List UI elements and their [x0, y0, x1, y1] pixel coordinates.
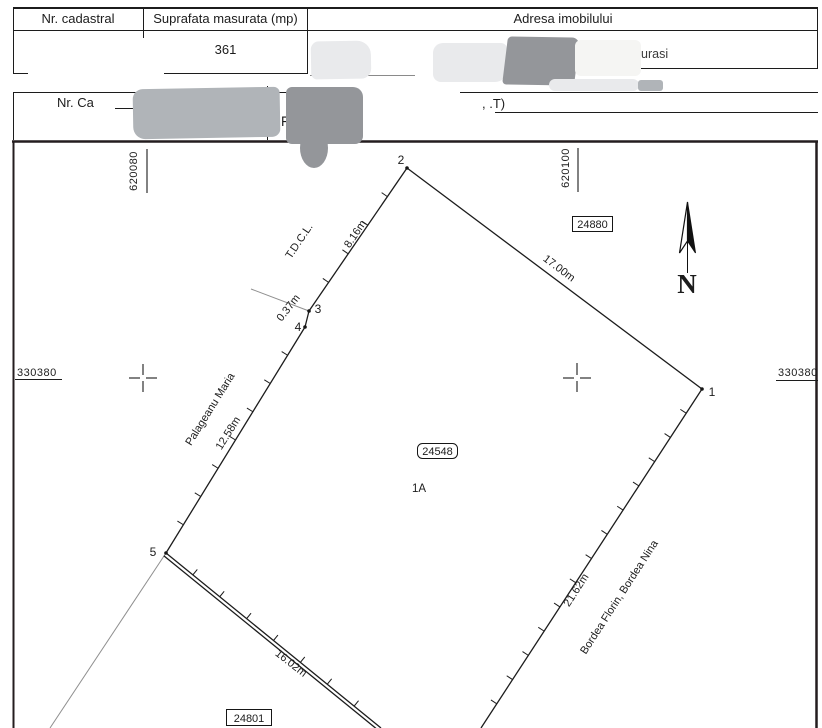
table1-top-border [13, 7, 818, 9]
point-label-1: 1 [709, 385, 716, 399]
neighbor-parcel-south-box: 24801 [227, 710, 272, 726]
abutter-north-label: T.D.C.L. [283, 221, 315, 261]
point-label-3: 3 [315, 302, 322, 316]
redaction-blob-white [28, 66, 164, 81]
table2-uat-fragment: , .T) [482, 96, 505, 111]
north-arrow-icon: N [677, 202, 697, 299]
table1-value-suprafata: 361 [144, 42, 307, 57]
neighbor-parcel-north-box: 24880 [573, 217, 613, 232]
redaction-blob [549, 79, 639, 91]
grid-cross-west [129, 364, 157, 392]
redaction-blob [575, 40, 641, 76]
measure-1-south: 21.62m [561, 572, 591, 609]
northing-label-right: 330380 [778, 367, 818, 379]
table2-row-divider-right [495, 112, 818, 113]
table1-header-adresa: Adresa imobilului [308, 11, 818, 26]
redaction-blob [311, 40, 372, 79]
subject-parcel-box: 24548 [418, 444, 458, 459]
easting-label-right: 620100 [560, 148, 572, 188]
table2-top-border-right [460, 92, 818, 93]
boundary-3-4 [305, 311, 309, 327]
measure-5-south: 16.02m [273, 648, 309, 680]
northing-label-left: 330380 [17, 367, 57, 379]
boundary-2-1 [407, 168, 702, 389]
redaction-blob [133, 87, 281, 140]
point-label-5: 5 [150, 545, 157, 559]
boundary-vertices [164, 166, 704, 555]
lot-label: 1A [412, 483, 426, 495]
measure-2-1: 17.00m [541, 253, 578, 285]
redaction-blob [638, 80, 663, 91]
north-label: N [677, 269, 697, 299]
svg-text:24880: 24880 [577, 219, 608, 231]
table1-header-suprafata: Suprafata masurata (mp) [144, 11, 307, 26]
table2-label-nr-carte: Nr. Ca [57, 95, 94, 110]
grid-cross-east [563, 363, 591, 392]
table1-header-nr-cadastral: Nr. cadastral [13, 11, 143, 26]
point-label-4: 4 [295, 320, 302, 334]
table1-header-divider [13, 30, 818, 31]
owner-east-label: Bordea Florin, Bordea Nina [578, 537, 661, 656]
table1-value-adresa-fragment: urasi [641, 47, 668, 61]
svg-text:24548: 24548 [422, 446, 453, 458]
redaction-blob [300, 128, 328, 168]
svg-text:24801: 24801 [234, 713, 265, 725]
cadastral-plan: 620080 620100 330380 330380 2 3 4 5 1 8.… [0, 140, 822, 728]
easting-label-left: 620080 [128, 151, 140, 191]
table2-left-border [13, 92, 14, 140]
point-label-2: 2 [398, 153, 405, 167]
extension-line-point5 [50, 553, 166, 728]
redaction-blob [433, 43, 507, 82]
boundary-5-south-parallel [164, 556, 379, 728]
